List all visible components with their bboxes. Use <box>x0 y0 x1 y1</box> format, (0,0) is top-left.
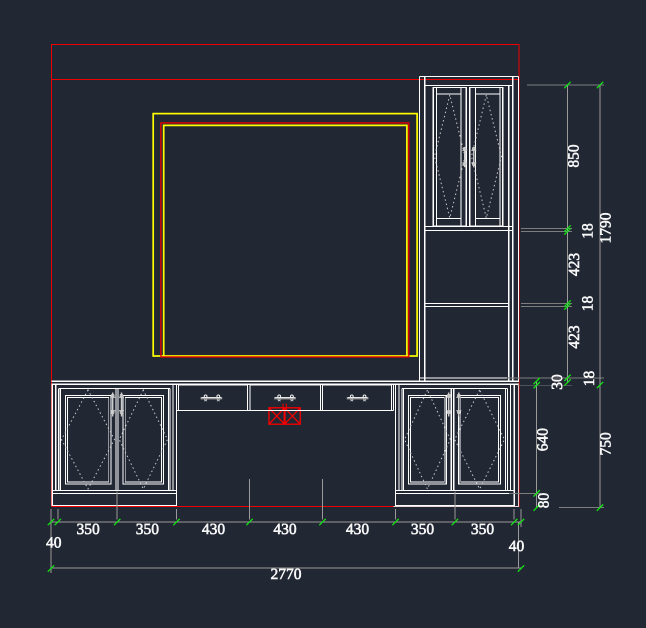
svg-text:430: 430 <box>273 521 297 538</box>
svg-text:430: 430 <box>346 521 370 538</box>
svg-text:350: 350 <box>471 521 495 538</box>
svg-text:350: 350 <box>136 521 160 538</box>
svg-text:40: 40 <box>46 535 62 552</box>
svg-text:430: 430 <box>202 521 226 538</box>
svg-text:750: 750 <box>598 432 615 456</box>
svg-text:2770: 2770 <box>271 566 302 583</box>
svg-text:350: 350 <box>76 521 100 538</box>
svg-text:350: 350 <box>411 521 435 538</box>
svg-text:423: 423 <box>566 325 583 349</box>
svg-text:40: 40 <box>509 538 525 555</box>
svg-text:1790: 1790 <box>598 212 615 243</box>
svg-text:18: 18 <box>581 371 598 387</box>
svg-text:850: 850 <box>566 144 583 168</box>
svg-text:30: 30 <box>549 374 566 390</box>
svg-text:18: 18 <box>580 296 597 312</box>
svg-text:18: 18 <box>580 223 597 239</box>
svg-text:423: 423 <box>566 253 583 277</box>
svg-text:640: 640 <box>535 428 552 452</box>
svg-text:80: 80 <box>536 493 553 509</box>
